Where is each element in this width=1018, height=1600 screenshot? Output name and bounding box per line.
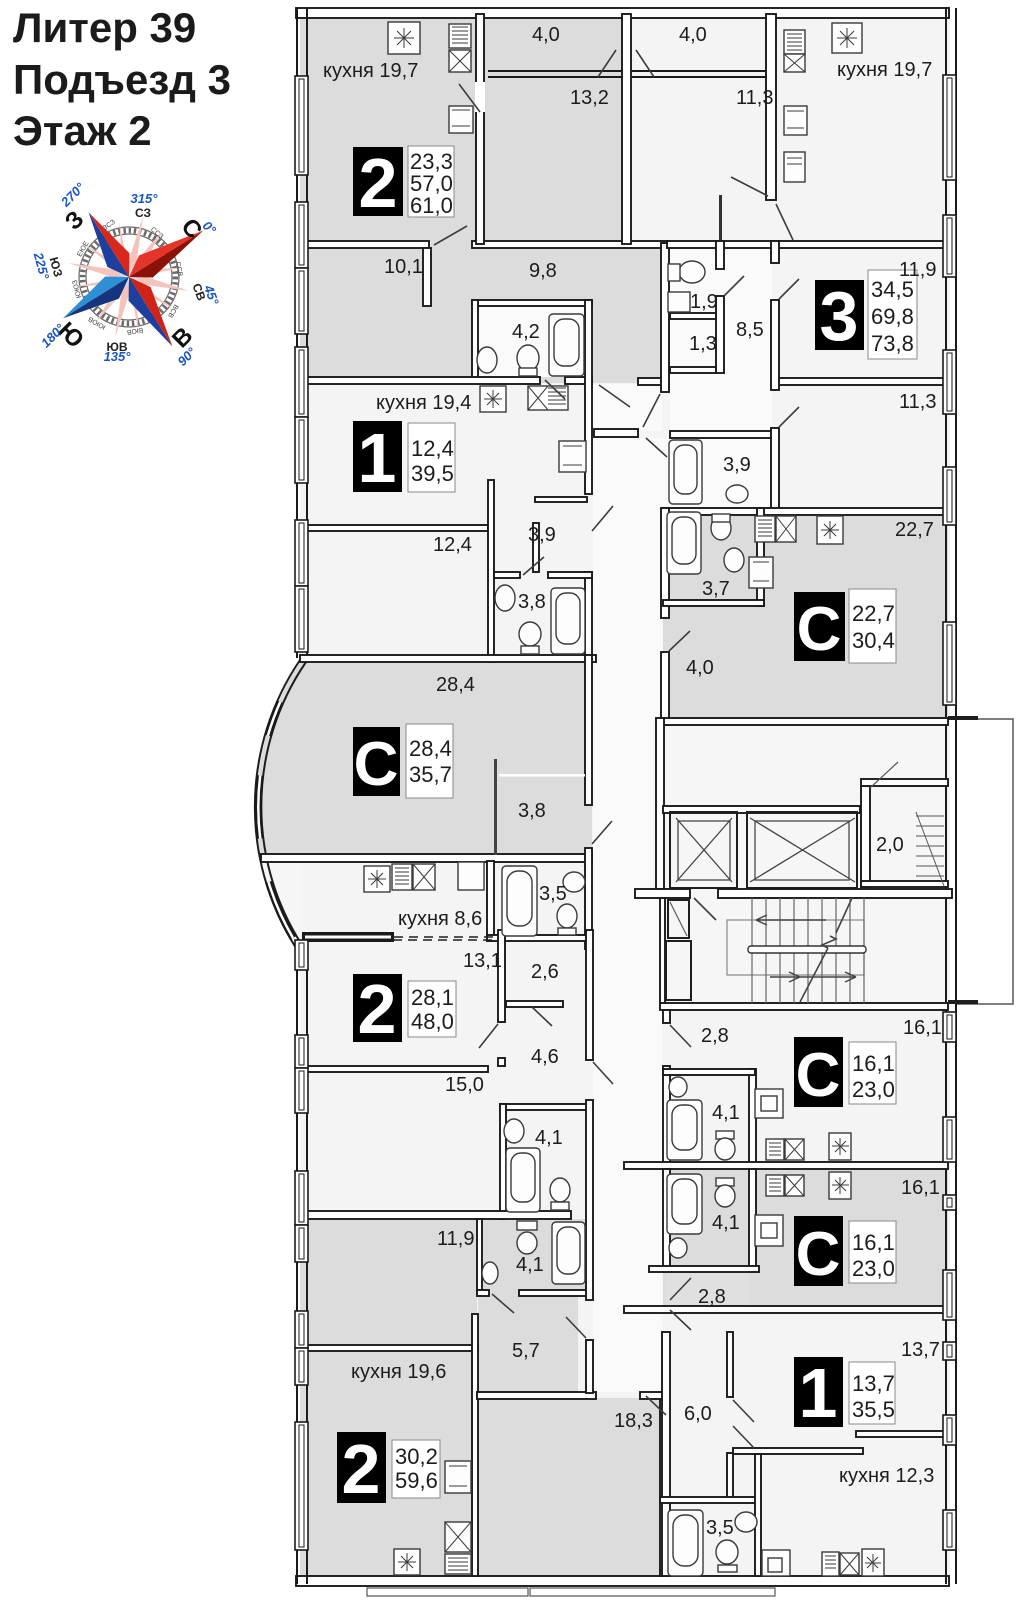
svg-text:С: С	[796, 1220, 841, 1289]
svg-text:16,1: 16,1	[903, 1017, 942, 1039]
svg-text:4,1: 4,1	[712, 1212, 740, 1234]
svg-text:11,3: 11,3	[736, 87, 773, 109]
svg-text:1: 1	[799, 1354, 838, 1432]
svg-text:28,4: 28,4	[409, 736, 452, 761]
svg-text:23,0: 23,0	[852, 1256, 895, 1281]
svg-text:35,7: 35,7	[409, 762, 452, 787]
svg-text:3,9: 3,9	[723, 454, 751, 476]
svg-text:61,0: 61,0	[410, 193, 453, 218]
svg-text:13,7: 13,7	[901, 1339, 940, 1361]
svg-text:11,9: 11,9	[437, 1228, 474, 1250]
svg-text:73,8: 73,8	[871, 331, 914, 356]
svg-text:4,1: 4,1	[535, 1127, 563, 1149]
svg-text:2: 2	[359, 144, 398, 222]
svg-text:10,1: 10,1	[384, 256, 423, 278]
svg-text:6,0: 6,0	[684, 1403, 712, 1425]
svg-text:8,5: 8,5	[736, 319, 764, 341]
svg-text:1,3: 1,3	[689, 333, 717, 355]
svg-text:9,8: 9,8	[529, 260, 557, 282]
svg-text:1: 1	[358, 419, 397, 497]
svg-text:28,1: 28,1	[411, 985, 454, 1010]
svg-text:2,8: 2,8	[698, 1286, 726, 1308]
svg-text:28,4: 28,4	[436, 674, 475, 696]
svg-text:3,5: 3,5	[706, 1517, 734, 1539]
svg-text:5,7: 5,7	[512, 1340, 540, 1362]
svg-text:кухня 19,7: кухня 19,7	[323, 60, 418, 82]
svg-text:3,5: 3,5	[539, 883, 567, 905]
svg-text:С: С	[797, 595, 842, 664]
svg-text:Литер 39: Литер 39	[13, 4, 196, 51]
svg-text:48,0: 48,0	[411, 1009, 454, 1034]
svg-text:4,0: 4,0	[679, 24, 707, 46]
svg-text:3: 3	[820, 277, 859, 355]
svg-text:59,6: 59,6	[395, 1468, 438, 1493]
svg-text:3,9: 3,9	[528, 524, 556, 546]
svg-text:13,1: 13,1	[463, 950, 502, 972]
svg-text:ЮВ: ЮВ	[106, 340, 127, 354]
svg-text:3,8: 3,8	[518, 800, 546, 822]
svg-text:13,7: 13,7	[852, 1371, 895, 1396]
svg-text:16,1: 16,1	[852, 1051, 895, 1076]
svg-text:22,7: 22,7	[895, 519, 934, 541]
svg-text:39,5: 39,5	[411, 461, 454, 486]
svg-text:23,0: 23,0	[852, 1077, 895, 1102]
svg-text:12,4: 12,4	[411, 436, 454, 461]
svg-text:СЗ: СЗ	[135, 206, 151, 220]
svg-text:11,9: 11,9	[899, 259, 936, 281]
svg-text:11,3: 11,3	[899, 391, 936, 413]
svg-text:315°: 315°	[131, 191, 159, 206]
svg-text:35,5: 35,5	[852, 1397, 895, 1422]
svg-text:16,1: 16,1	[852, 1230, 895, 1255]
svg-text:12,4: 12,4	[433, 534, 472, 556]
svg-text:30,4: 30,4	[852, 628, 895, 653]
svg-text:Этаж 2: Этаж 2	[13, 107, 152, 154]
svg-text:30,2: 30,2	[395, 1444, 438, 1469]
svg-text:4,2: 4,2	[512, 321, 540, 343]
svg-text:13,2: 13,2	[570, 87, 609, 109]
svg-text:18,3: 18,3	[614, 1410, 653, 1432]
svg-text:С: С	[354, 730, 399, 799]
svg-text:С: С	[796, 1041, 841, 1110]
svg-text:кухня 19,6: кухня 19,6	[351, 1361, 446, 1383]
svg-text:кухня 12,3: кухня 12,3	[839, 1465, 934, 1487]
svg-text:4,1: 4,1	[516, 1254, 544, 1276]
svg-text:1,9: 1,9	[690, 291, 718, 313]
svg-text:Подъезд 3: Подъезд 3	[13, 56, 231, 103]
svg-text:2: 2	[358, 970, 397, 1048]
svg-text:4,1: 4,1	[712, 1102, 740, 1124]
svg-text:2,8: 2,8	[701, 1025, 729, 1047]
svg-text:15,0: 15,0	[445, 1074, 484, 1096]
svg-text:4,6: 4,6	[531, 1046, 559, 1068]
svg-text:2: 2	[342, 1430, 381, 1508]
svg-text:3,8: 3,8	[518, 591, 546, 613]
svg-text:2,6: 2,6	[531, 961, 559, 983]
svg-text:4,0: 4,0	[532, 24, 560, 46]
svg-text:2,0: 2,0	[876, 834, 904, 856]
svg-text:кухня 19,4: кухня 19,4	[376, 392, 471, 414]
svg-text:4,0: 4,0	[686, 657, 714, 679]
svg-text:69,8: 69,8	[871, 304, 914, 329]
svg-text:3,7: 3,7	[702, 578, 730, 600]
svg-text:кухня 8,6: кухня 8,6	[398, 908, 482, 930]
svg-text:16,1: 16,1	[901, 1177, 940, 1199]
svg-text:кухня 19,7: кухня 19,7	[837, 59, 932, 81]
svg-text:22,7: 22,7	[852, 601, 895, 626]
